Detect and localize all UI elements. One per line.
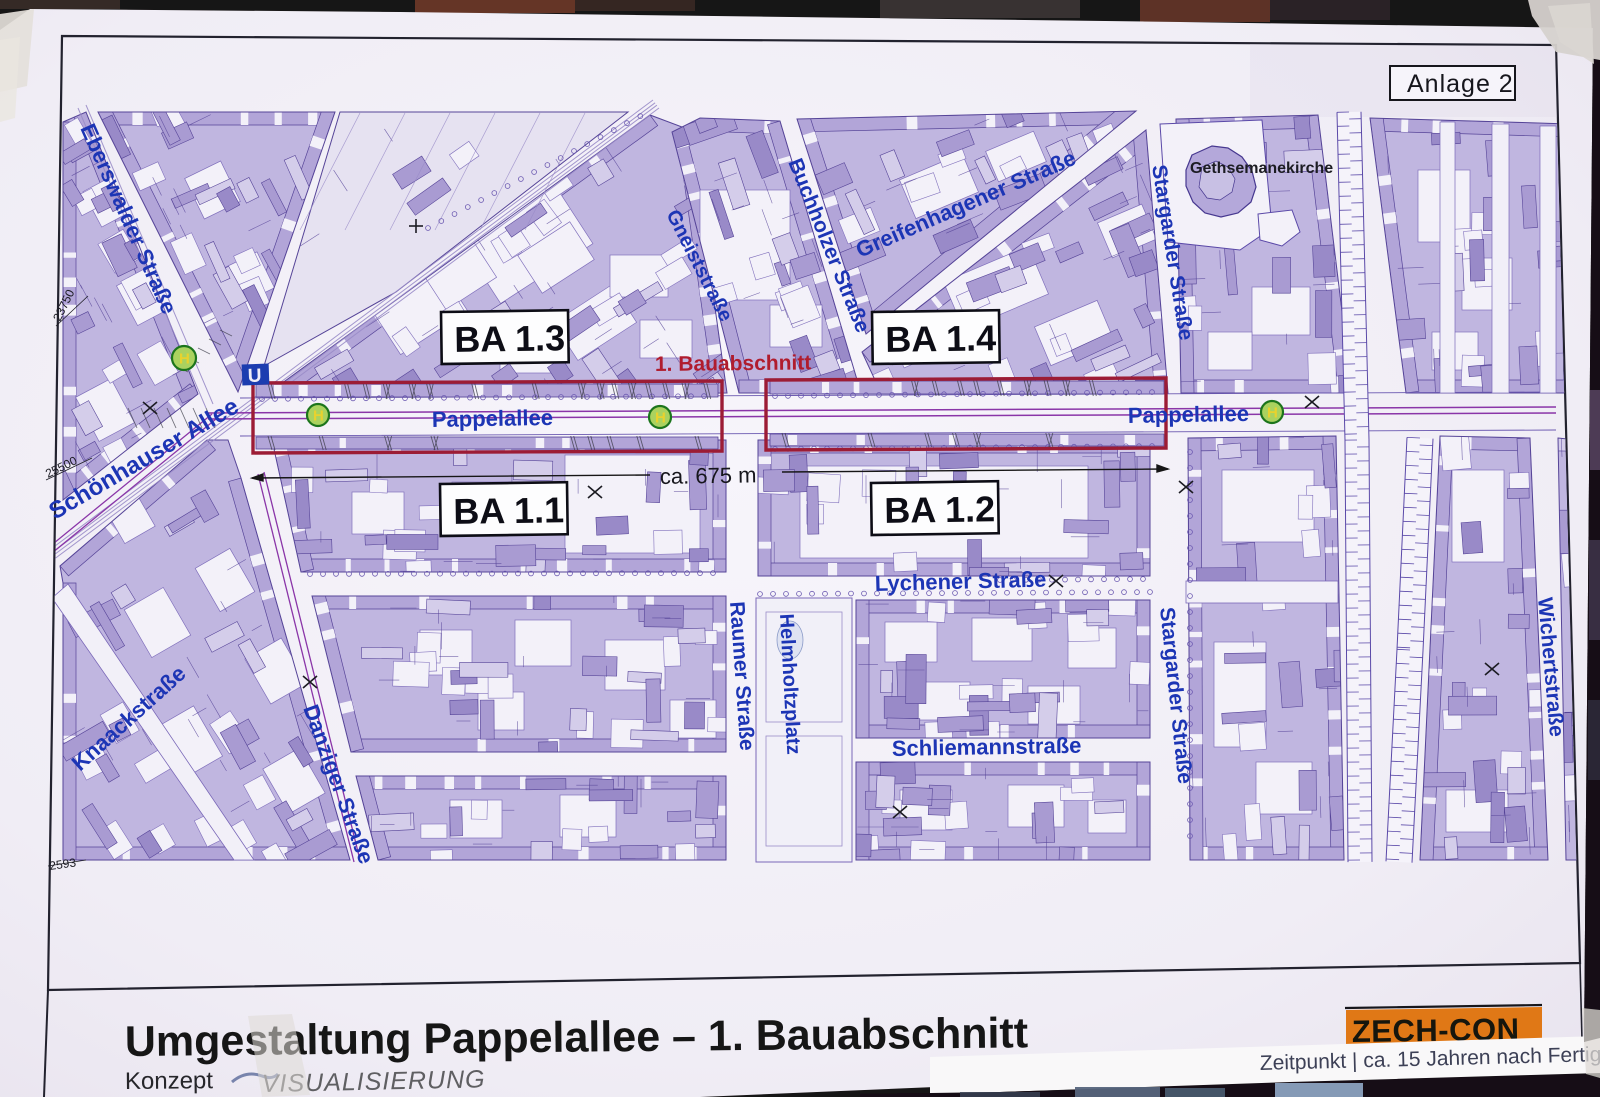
svg-text:1. Bauabschnitt: 1. Bauabschnitt: [655, 351, 812, 376]
svg-text:Konzept: Konzept: [125, 1067, 214, 1095]
svg-text:Schliemannstraße: Schliemannstraße: [892, 733, 1082, 761]
svg-text:H: H: [1267, 405, 1278, 422]
svg-text:Lychener Straße: Lychener Straße: [874, 567, 1046, 596]
svg-text:BA 1.3: BA 1.3: [454, 317, 565, 360]
svg-text:ca. 675 m: ca. 675 m: [660, 462, 757, 489]
svg-text:U: U: [247, 366, 261, 387]
svg-text:H: H: [313, 408, 324, 425]
svg-text:Pappelallee: Pappelallee: [432, 405, 553, 432]
svg-text:BA 1.4: BA 1.4: [885, 317, 996, 360]
svg-text:Pappelallee: Pappelallee: [1128, 401, 1249, 428]
svg-text:Gethsemanekirche: Gethsemanekirche: [1190, 160, 1333, 177]
svg-text:BA 1.2: BA 1.2: [884, 488, 995, 531]
svg-text:H: H: [179, 351, 190, 368]
svg-text:H: H: [655, 410, 666, 427]
svg-text:BA 1.1: BA 1.1: [453, 489, 564, 532]
svg-text:Anlage 2: Anlage 2: [1407, 70, 1514, 98]
